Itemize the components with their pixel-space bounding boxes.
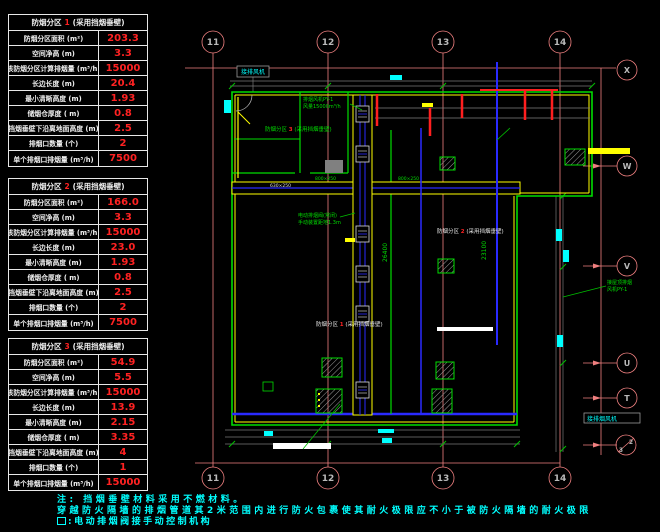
floor-plan: 11 12 13 14 11 12 13 14 X W V U T 2 3: [0, 0, 660, 532]
dimension-lines: [225, 77, 592, 452]
grid-bubble-top-14: 14: [554, 38, 567, 48]
zone-1-label: 防烟分区 1 (采用挡烟垂壁): [316, 320, 383, 328]
wall-niche: [263, 382, 273, 391]
grid-bubble-right-v: V: [624, 262, 631, 271]
duct-size-label: 630×250: [270, 183, 291, 189]
building-outline: [232, 92, 592, 425]
duct-damper: [356, 382, 369, 398]
valve-annotation-1: 电动排烟阀(常闭): [298, 212, 337, 219]
zone-2-label: 防烟分区 2 (采用挡烟垂壁): [437, 227, 504, 235]
grid-bubble-bottom-12: 12: [322, 474, 335, 484]
grid-bubble-bottom-14: 14: [554, 474, 567, 484]
smoke-vent: [436, 362, 454, 379]
damper-marks: [345, 103, 630, 242]
grid-bubble-labels: 11 12 13 14 11 12 13 14 X W V U T 2 3: [207, 38, 633, 484]
grid-bubble-right-u: U: [624, 359, 631, 368]
grid-bubble-right-t: T: [624, 394, 630, 403]
grid-bubble-right-w: W: [623, 162, 632, 171]
fan-annotation-2: 风量15000m³/h: [303, 103, 341, 110]
interior-walls: [232, 92, 590, 414]
dimension-ticks: [229, 83, 595, 452]
duct-size-label: 800×250: [315, 176, 336, 182]
grid-bubble-split-top: 2: [629, 439, 633, 446]
fan-annotation-1: 排烟风机PY-1: [303, 96, 333, 103]
vertical-dim-left: 26400: [382, 243, 389, 262]
right-annotation-1: 接屋顶排烟: [607, 279, 632, 286]
grid-bubble-right-x: X: [624, 66, 631, 75]
highlight-bar: [588, 148, 630, 154]
duct-size-label: 800×250: [398, 176, 419, 182]
smoke-vent: [322, 358, 342, 377]
right-annotation-2: 风机PY-1: [607, 286, 627, 293]
right-connection-label: 接排烟风机: [587, 415, 617, 423]
valve-annotation-2: 手动装置距地1.3m: [298, 219, 341, 226]
grid-bubble-top-13: 13: [437, 38, 450, 48]
smoke-vent: [438, 259, 454, 273]
duct-damper: [356, 226, 369, 242]
smoke-vent: [565, 149, 585, 165]
smoke-vent: [440, 157, 455, 170]
vertical-dim-right: 23100: [481, 241, 488, 260]
duct-damper: [356, 146, 369, 162]
left-connection-label: 接排风机: [241, 68, 265, 76]
vertical-shaft: [353, 95, 372, 415]
grid-bubble-bottom-11: 11: [207, 474, 220, 484]
zone-3-label: 防烟分区 3 (采用挡烟垂壁): [265, 125, 332, 133]
fire-shutters: [377, 90, 558, 136]
grid-bubble-top-12: 12: [322, 38, 335, 48]
duct-damper: [356, 306, 369, 322]
grid-bubble-top-11: 11: [207, 38, 220, 48]
door-swing: [238, 112, 250, 124]
smoke-vent: [432, 389, 452, 413]
grid-bubble-bottom-13: 13: [437, 474, 450, 484]
duct-damper: [356, 266, 369, 282]
cad-viewport: 防烟分区1(采用挡烟垂壁)防烟分区面积 (m²)203.3空间净高 (m)3.3…: [0, 0, 660, 532]
fixture-block: [325, 160, 343, 173]
grid-bubble-split-bottom: 3: [619, 447, 623, 454]
grid-system: [185, 31, 637, 489]
